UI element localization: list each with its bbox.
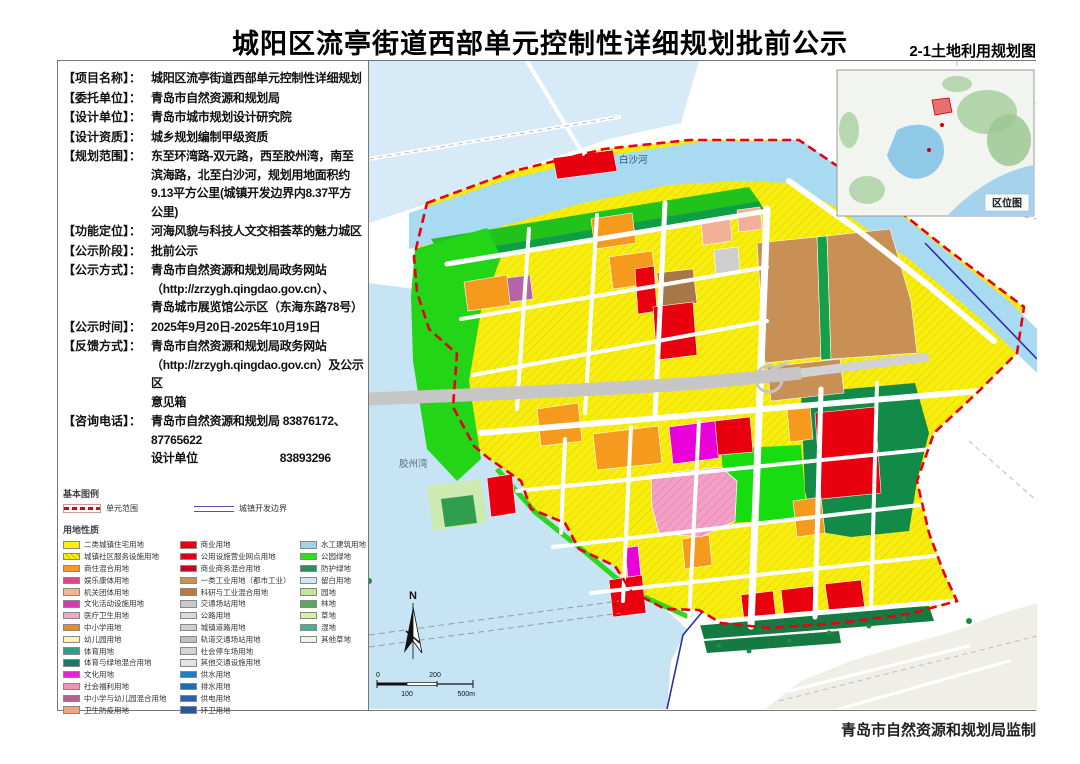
legend-swatch bbox=[300, 541, 317, 549]
legend-item-label: 轨道交通场站用地 bbox=[201, 634, 261, 645]
legend-swatch bbox=[300, 588, 317, 596]
legend-item: 水工建筑用地 bbox=[300, 539, 366, 551]
legend-swatch bbox=[63, 624, 80, 632]
legend-swatch bbox=[63, 683, 80, 691]
legend-boundary-label: 单元范围 bbox=[106, 503, 138, 514]
svg-text:500m: 500m bbox=[457, 691, 475, 698]
info-row: 【规划范围】：东至环湾路-双元路，西至胶州湾，南至 滨海路，北至白沙河，规划用地… bbox=[63, 147, 367, 221]
legend-swatch bbox=[63, 577, 80, 585]
legend-swatch bbox=[180, 577, 197, 585]
info-row: 【委托单位】：青岛市自然资源和规划局 bbox=[63, 89, 367, 108]
legend-item: 供电用地 bbox=[180, 692, 291, 704]
legend-boundary-item: 城镇开发边界 bbox=[194, 503, 287, 514]
legend-item-label: 体育用地 bbox=[84, 646, 114, 657]
legend-title: 基本图例 bbox=[63, 487, 366, 500]
legend-swatch bbox=[180, 706, 197, 714]
info-row: 【咨询电话】：青岛市自然资源和规划局 83876172、87765622 设计单… bbox=[63, 412, 367, 468]
legend-swatch bbox=[300, 565, 317, 573]
info-value: 青岛市自然资源和规划局政务网站 （http://zrzygh.qingdao.g… bbox=[151, 261, 367, 317]
legend-item: 科研与工业混合用地 bbox=[180, 586, 291, 598]
legend-item: 体育与绿地混合用地 bbox=[63, 657, 171, 669]
legend-item-label: 幼儿园用地 bbox=[84, 634, 122, 645]
legend-item: 林地 bbox=[300, 598, 366, 610]
inset-location-map: 区位图 bbox=[837, 70, 1034, 216]
svg-text:0: 0 bbox=[376, 672, 380, 679]
info-label: 【功能定位】： bbox=[63, 222, 151, 241]
legend-item: 公路用地 bbox=[180, 610, 291, 622]
legend-swatch bbox=[300, 636, 317, 644]
info-row: 【公示方式】：青岛市自然资源和规划局政务网站 （http://zrzygh.qi… bbox=[63, 261, 367, 317]
info-row: 【设计单位】：青岛市城市规划设计研究院 bbox=[63, 108, 367, 127]
info-row: 【公示阶段】：批前公示 bbox=[63, 242, 367, 261]
legend-item-label: 防护绿地 bbox=[321, 563, 351, 574]
info-row: 【设计资质】：城乡规划编制甲级资质 bbox=[63, 128, 367, 147]
legend-swatch bbox=[180, 553, 197, 561]
info-label: 【设计单位】： bbox=[63, 108, 151, 127]
legend-column: 二类城镇住宅用地城镇社区服务设施用地商住混合用地娱乐康体用地机关团体用地文化活动… bbox=[63, 539, 171, 716]
river-label: 白沙河 bbox=[619, 154, 648, 166]
legend-swatch bbox=[180, 671, 197, 679]
legend-item-label: 中小学与幼儿园混合用地 bbox=[84, 693, 167, 704]
legend-swatch bbox=[180, 624, 197, 632]
info-value: 青岛市自然资源和规划局政务网站 （http://zrzygh.qingdao.g… bbox=[151, 337, 367, 411]
legend-item-label: 娱乐康体用地 bbox=[84, 575, 129, 586]
legend-item: 其他交通设施用地 bbox=[180, 657, 291, 669]
legend-item-label: 二类城镇住宅用地 bbox=[84, 539, 144, 550]
legend-swatch bbox=[300, 577, 317, 585]
legend-boundary-label: 城镇开发边界 bbox=[239, 503, 287, 514]
legend-swatch bbox=[300, 553, 317, 561]
info-label: 【项目名称】： bbox=[63, 69, 151, 88]
legend-item: 留白用地 bbox=[300, 574, 366, 586]
info-value: 东至环湾路-双元路，西至胶州湾，南至 滨海路，北至白沙河，规划用地面积约 9.1… bbox=[151, 147, 367, 221]
legend-item: 文化用地 bbox=[63, 669, 171, 681]
legend-subtitle: 用地性质 bbox=[63, 523, 366, 536]
info-value: 河海风貌与科技人文交相荟萃的魅力城区 bbox=[151, 222, 367, 241]
map-sheet-code: 2-1土地利用规划图 bbox=[909, 40, 1036, 61]
legend-item-label: 社会停车场用地 bbox=[201, 646, 254, 657]
legend-item-label: 交通场站用地 bbox=[201, 598, 246, 609]
legend-item: 幼儿园用地 bbox=[63, 633, 171, 645]
legend-column: 水工建筑用地公园绿地防护绿地留白用地园地林地草地湿地其他草地 bbox=[300, 539, 366, 716]
legend-item: 中小学用地 bbox=[63, 622, 171, 634]
legend-item-label: 水工建筑用地 bbox=[321, 539, 366, 550]
legend-item-label: 公园绿地 bbox=[321, 551, 351, 562]
legend-item-label: 卫生防疫用地 bbox=[84, 705, 129, 716]
legend-item-label: 城镇道路用地 bbox=[201, 622, 246, 633]
legend-item-label: 文化活动设施用地 bbox=[84, 598, 144, 609]
land-use-map: 白沙河 胶州湾 N 0 200 100 500m 区位图 bbox=[368, 61, 1037, 710]
legend-swatch bbox=[63, 612, 80, 620]
legend-item-label: 城镇社区服务设施用地 bbox=[84, 551, 159, 562]
info-row: 【公示时间】：2025年9月20日-2025年10月19日 bbox=[63, 318, 367, 337]
info-value: 青岛市城市规划设计研究院 bbox=[151, 108, 367, 127]
legend-item-label: 商住混合用地 bbox=[84, 563, 129, 574]
info-label: 【公示方式】： bbox=[63, 261, 151, 317]
legend-swatch bbox=[63, 695, 80, 703]
legend-item: 轨道交通场站用地 bbox=[180, 633, 291, 645]
info-label: 【公示阶段】： bbox=[63, 242, 151, 261]
legend-item: 娱乐康体用地 bbox=[63, 574, 171, 586]
svg-text:N: N bbox=[409, 590, 417, 602]
info-value: 青岛市自然资源和规划局 bbox=[151, 89, 367, 108]
legend-item: 商业商务混合用地 bbox=[180, 563, 291, 575]
legend-item-label: 林地 bbox=[321, 598, 336, 609]
legend-swatch bbox=[300, 600, 317, 608]
legend-item: 商住混合用地 bbox=[63, 563, 171, 575]
legend-swatch bbox=[63, 659, 80, 667]
legend-item-label: 机关团体用地 bbox=[84, 587, 129, 598]
development-boundary-swatch bbox=[194, 506, 234, 512]
legend-panel: 基本图例 单元范围城镇开发边界 用地性质 二类城镇住宅用地城镇社区服务设施用地商… bbox=[63, 487, 366, 716]
legend-swatch bbox=[180, 695, 197, 703]
legend-boundaries: 单元范围城镇开发边界 bbox=[63, 503, 366, 514]
legend-item: 社会福利用地 bbox=[63, 681, 171, 693]
info-label: 【委托单位】： bbox=[63, 89, 151, 108]
info-label: 【反馈方式】： bbox=[63, 337, 151, 411]
legend-swatch bbox=[180, 565, 197, 573]
legend-item-label: 供电用地 bbox=[201, 693, 231, 704]
legend-item-label: 一类工业用地（都市工业） bbox=[201, 575, 291, 586]
legend-item: 园地 bbox=[300, 586, 366, 598]
legend-column: 商业用地公用设施营业网点用地商业商务混合用地一类工业用地（都市工业）科研与工业混… bbox=[180, 539, 291, 716]
legend-item: 供水用地 bbox=[180, 669, 291, 681]
legend-swatch bbox=[180, 541, 197, 549]
legend-item: 城镇社区服务设施用地 bbox=[63, 551, 171, 563]
legend-item-label: 中小学用地 bbox=[84, 622, 122, 633]
legend-item-label: 体育与绿地混合用地 bbox=[84, 657, 152, 668]
legend-item: 湿地 bbox=[300, 622, 366, 634]
legend-item-label: 公路用地 bbox=[201, 610, 231, 621]
legend-item-label: 留白用地 bbox=[321, 575, 351, 586]
svg-text:200: 200 bbox=[429, 672, 441, 679]
legend-item-label: 排水用地 bbox=[201, 681, 231, 692]
legend-item: 公园绿地 bbox=[300, 551, 366, 563]
legend-swatch bbox=[180, 600, 197, 608]
legend-item: 中小学与幼儿园混合用地 bbox=[63, 692, 171, 704]
legend-item: 卫生防疫用地 bbox=[63, 704, 171, 716]
legend-item: 医疗卫生用地 bbox=[63, 610, 171, 622]
svg-text:100: 100 bbox=[401, 691, 413, 698]
legend-swatch bbox=[63, 671, 80, 679]
legend-item-label: 科研与工业混合用地 bbox=[201, 587, 269, 598]
legend-swatch bbox=[63, 553, 80, 561]
legend-item-label: 园地 bbox=[321, 587, 336, 598]
info-value: 2025年9月20日-2025年10月19日 bbox=[151, 318, 367, 337]
info-value: 城乡规划编制甲级资质 bbox=[151, 128, 367, 147]
legend-boundary-item: 单元范围 bbox=[63, 503, 138, 514]
inset-label: 区位图 bbox=[992, 197, 1022, 210]
issuer-credit: 青岛市自然资源和规划局监制 bbox=[841, 719, 1036, 740]
legend-item-label: 环卫用地 bbox=[201, 705, 231, 716]
legend-item: 公用设施营业网点用地 bbox=[180, 551, 291, 563]
map-svg: 白沙河 胶州湾 N 0 200 100 500m 区位图 bbox=[369, 61, 1037, 710]
legend-swatch bbox=[180, 659, 197, 667]
info-label: 【公示时间】： bbox=[63, 318, 151, 337]
legend-item: 草地 bbox=[300, 610, 366, 622]
legend-item-label: 商业用地 bbox=[201, 539, 231, 550]
legend-item: 其他草地 bbox=[300, 633, 366, 645]
legend-grid: 二类城镇住宅用地城镇社区服务设施用地商住混合用地娱乐康体用地机关团体用地文化活动… bbox=[63, 539, 366, 716]
legend-item: 防护绿地 bbox=[300, 563, 366, 575]
legend-swatch bbox=[63, 541, 80, 549]
legend-item: 机关团体用地 bbox=[63, 586, 171, 598]
legend-item-label: 草地 bbox=[321, 610, 336, 621]
info-value: 青岛市自然资源和规划局 83876172、87765622 设计单位 83893… bbox=[151, 412, 367, 468]
legend-item: 社会停车场用地 bbox=[180, 645, 291, 657]
legend-swatch bbox=[300, 624, 317, 632]
legend-item: 一类工业用地（都市工业） bbox=[180, 574, 291, 586]
legend-item-label: 供水用地 bbox=[201, 669, 231, 680]
legend-item-label: 医疗卫生用地 bbox=[84, 610, 129, 621]
legend-swatch bbox=[63, 706, 80, 714]
legend-item: 排水用地 bbox=[180, 681, 291, 693]
info-value: 批前公示 bbox=[151, 242, 367, 261]
legend-item: 环卫用地 bbox=[180, 704, 291, 716]
info-row: 【功能定位】：河海风貌与科技人文交相荟萃的魅力城区 bbox=[63, 222, 367, 241]
legend-item: 体育用地 bbox=[63, 645, 171, 657]
legend-swatch bbox=[63, 600, 80, 608]
legend-swatch bbox=[63, 647, 80, 655]
legend-item: 交通场站用地 bbox=[180, 598, 291, 610]
info-label: 【规划范围】： bbox=[63, 147, 151, 221]
legend-item-label: 其他草地 bbox=[321, 634, 351, 645]
info-row: 【项目名称】：城阳区流亭街道西部单元控制性详细规划 bbox=[63, 69, 367, 88]
legend-swatch bbox=[180, 636, 197, 644]
legend-item: 城镇道路用地 bbox=[180, 622, 291, 634]
legend-swatch bbox=[63, 588, 80, 596]
info-value: 城阳区流亭街道西部单元控制性详细规划 bbox=[151, 69, 367, 88]
info-label: 【设计资质】： bbox=[63, 128, 151, 147]
legend-item: 文化活动设施用地 bbox=[63, 598, 171, 610]
legend-item-label: 社会福利用地 bbox=[84, 681, 129, 692]
legend-item: 二类城镇住宅用地 bbox=[63, 539, 171, 551]
legend-item-label: 公用设施营业网点用地 bbox=[201, 551, 276, 562]
legend-swatch bbox=[180, 647, 197, 655]
unit-boundary-swatch bbox=[63, 504, 101, 513]
bay-label: 胶州湾 bbox=[399, 458, 428, 470]
legend-item-label: 湿地 bbox=[321, 622, 336, 633]
legend-item-label: 文化用地 bbox=[84, 669, 114, 680]
legend-swatch bbox=[63, 565, 80, 573]
legend-swatch bbox=[180, 683, 197, 691]
legend-swatch bbox=[63, 636, 80, 644]
legend-swatch bbox=[300, 612, 317, 620]
project-info-panel: 【项目名称】：城阳区流亭街道西部单元控制性详细规划【委托单位】：青岛市自然资源和… bbox=[63, 69, 367, 469]
info-label: 【咨询电话】： bbox=[63, 412, 151, 468]
legend-item-label: 商业商务混合用地 bbox=[201, 563, 261, 574]
legend-item: 商业用地 bbox=[180, 539, 291, 551]
legend-swatch bbox=[180, 612, 197, 620]
page-title: 城阳区流亭街道西部单元控制性详细规划批前公示 bbox=[60, 22, 1020, 61]
legend-swatch bbox=[180, 588, 197, 596]
legend-item-label: 其他交通设施用地 bbox=[201, 657, 261, 668]
info-row: 【反馈方式】：青岛市自然资源和规划局政务网站 （http://zrzygh.qi… bbox=[63, 337, 367, 411]
